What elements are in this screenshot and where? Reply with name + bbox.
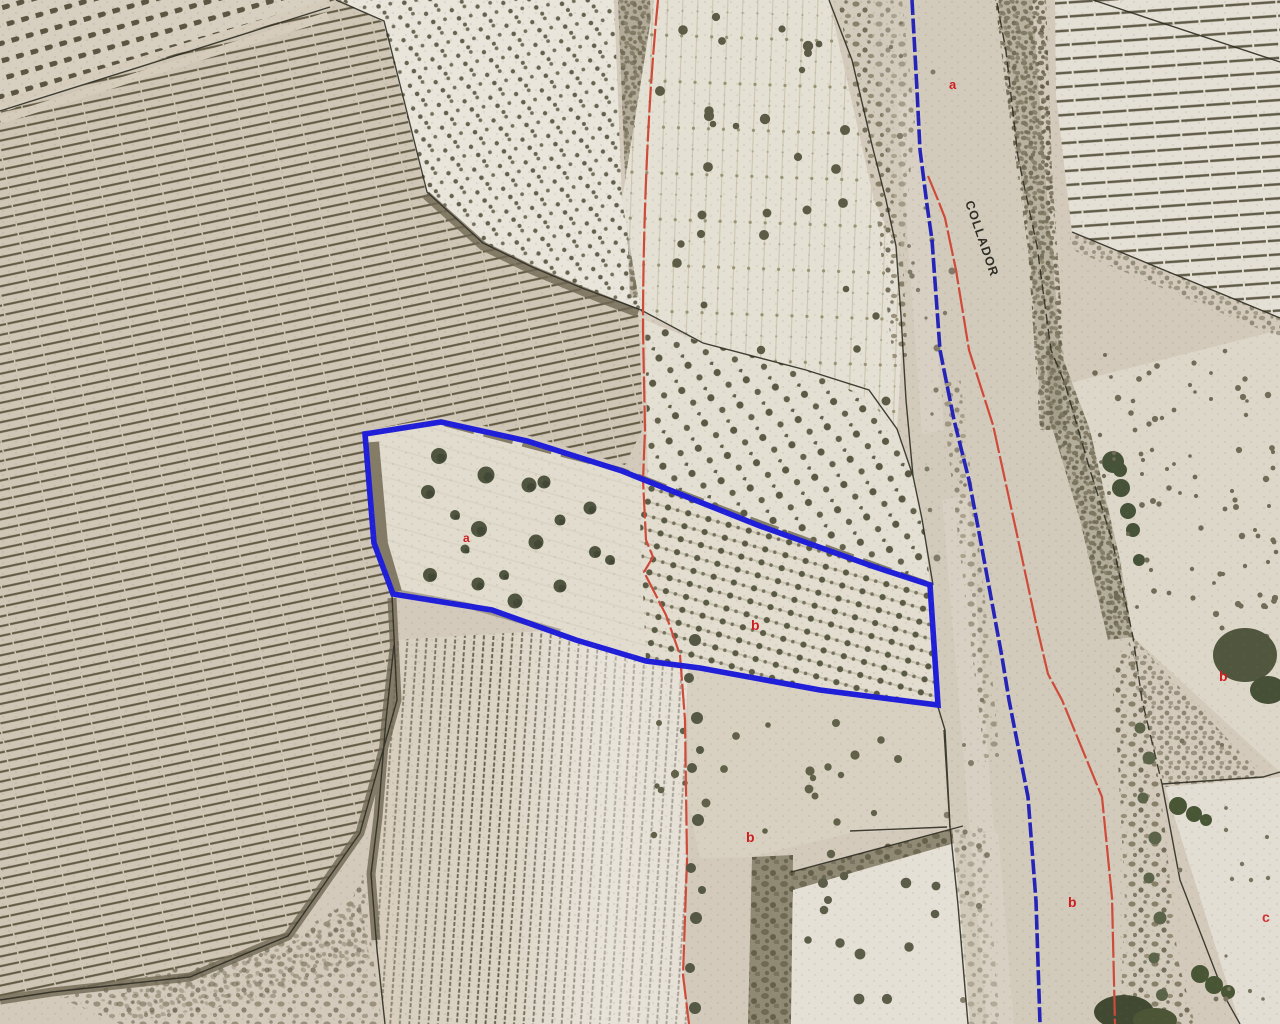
svg-text:c: c bbox=[1262, 909, 1270, 925]
svg-text:b: b bbox=[751, 617, 760, 633]
svg-text:b: b bbox=[746, 829, 755, 845]
svg-text:b: b bbox=[1219, 668, 1228, 684]
svg-text:a: a bbox=[949, 77, 957, 92]
svg-text:b: b bbox=[1068, 894, 1077, 910]
svg-text:a: a bbox=[463, 531, 470, 545]
